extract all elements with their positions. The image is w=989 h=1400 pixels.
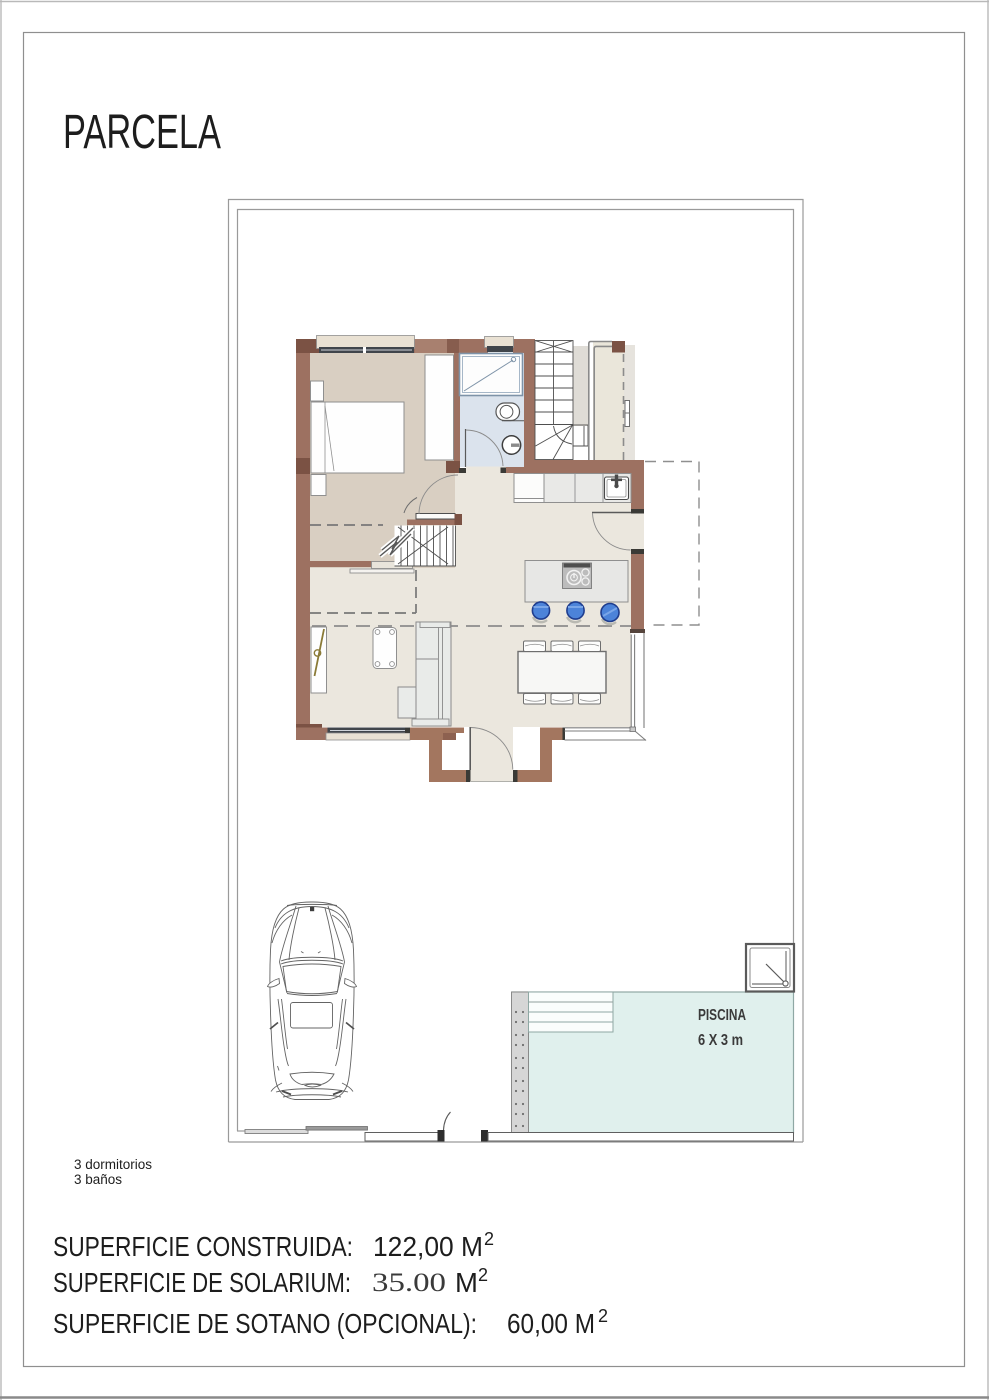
svg-text:M: M: [455, 1267, 478, 1298]
svg-text:PISCINA: PISCINA: [698, 1007, 746, 1024]
svg-text:60,00 M: 60,00 M: [507, 1308, 595, 1339]
svg-text:SUPERFICIE DE SOTANO (OPCIONAL: SUPERFICIE DE SOTANO (OPCIONAL):: [53, 1308, 477, 1339]
svg-text:3 dormitorios: 3 dormitorios: [74, 1157, 152, 1172]
svg-text:122,00 M: 122,00 M: [373, 1231, 483, 1262]
svg-text:2: 2: [598, 1306, 608, 1326]
svg-text:35.00: 35.00: [372, 1268, 446, 1297]
svg-text:SUPERFICIE DE SOLARIUM:: SUPERFICIE DE SOLARIUM:: [53, 1267, 351, 1298]
svg-text:SUPERFICIE CONSTRUIDA:: SUPERFICIE CONSTRUIDA:: [53, 1231, 353, 1262]
svg-text:2: 2: [478, 1265, 488, 1285]
svg-text:3 baños: 3 baños: [74, 1172, 122, 1187]
svg-text:2: 2: [484, 1229, 494, 1249]
svg-text:6 X 3 m: 6 X 3 m: [698, 1032, 743, 1049]
svg-text:PARCELA: PARCELA: [63, 106, 221, 159]
